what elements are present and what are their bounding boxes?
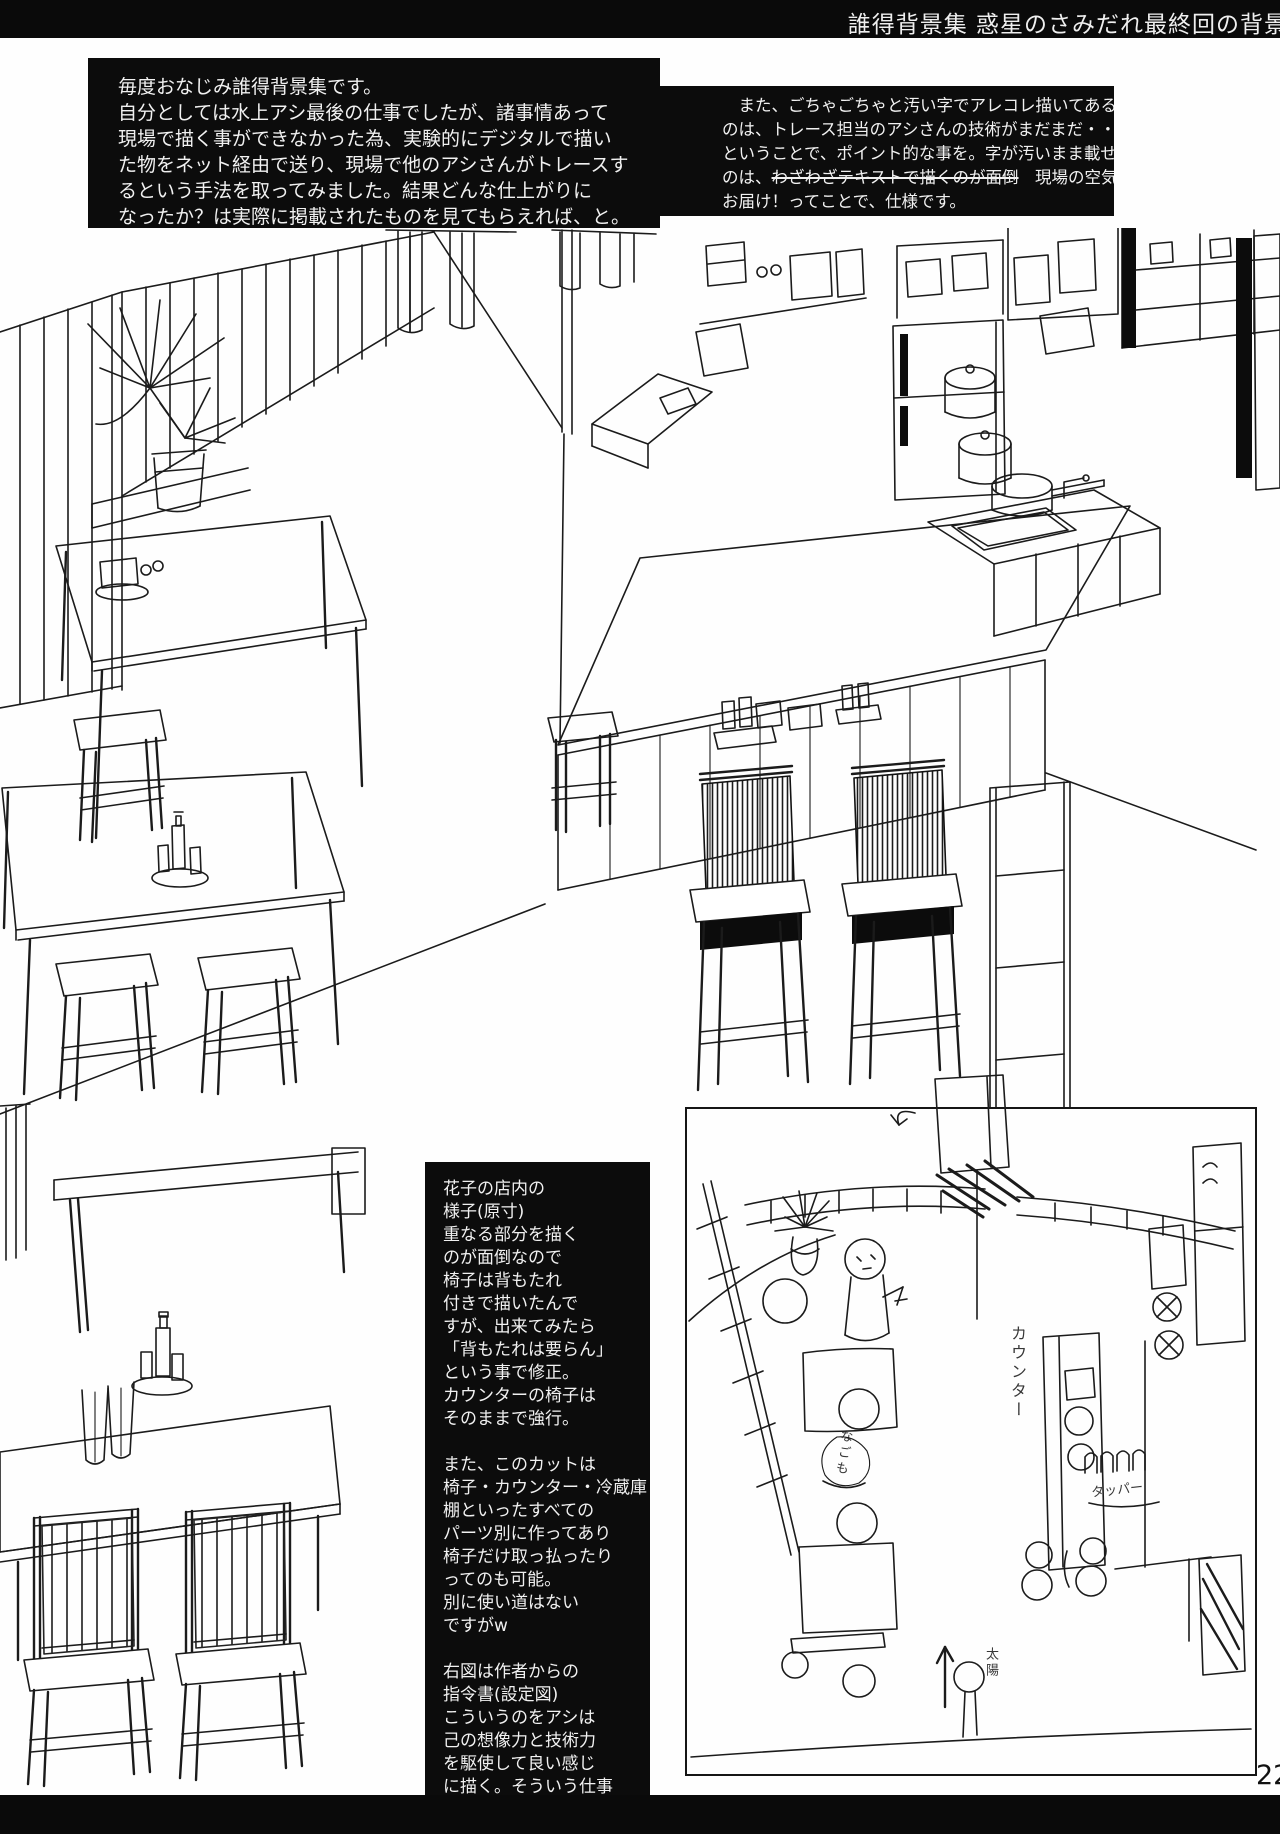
lower-illustration-tables-chairs xyxy=(0,1100,370,1795)
potted-plant xyxy=(88,300,235,512)
kitchen-area xyxy=(893,228,1280,636)
note-line: 椅子は背もたれ xyxy=(443,1270,650,1293)
page-title: 誰得背景集 惑星のさみだれ最終回の背景 xyxy=(848,5,1280,39)
stool xyxy=(74,710,166,842)
intro-right-line: また、ごちゃごちゃと汚い字でアレコレ描いてある xyxy=(722,94,1114,118)
wall-frame xyxy=(332,1148,365,1214)
back-table xyxy=(54,1152,358,1332)
note-line: 「背もたれは要らん」 xyxy=(443,1339,650,1362)
note-line: すが、出来てみたら xyxy=(443,1316,650,1339)
note-line: 棚といったすべての xyxy=(443,1500,650,1523)
note-line: という事で修正。 xyxy=(443,1362,650,1385)
note-line: カウンターの椅子は xyxy=(443,1385,650,1408)
bottom-bar xyxy=(0,1795,1280,1834)
intro-text-right: また、ごちゃごちゃと汚い字でアレコレ描いてある のは、トレース担当のアシさんの技… xyxy=(660,86,1114,216)
intro-left-line: 自分としては水上アシ最後の仕事でしたが、諸事情あって xyxy=(118,100,660,126)
stool xyxy=(198,948,300,1094)
note-line: 椅子・カウンター・冷蔵庫 xyxy=(443,1477,650,1500)
note-line: 別に使い道はない xyxy=(443,1592,650,1615)
condiment-set xyxy=(132,1312,192,1395)
intro-left-line: るという手法を取ってみました。結果どんな仕上がりに xyxy=(118,178,660,204)
slat-back-chair xyxy=(24,1509,154,1786)
intro-text-left: 毎度おなじみ誰得背景集です。 自分としては水上アシ最後の仕事でしたが、諸事情あっ… xyxy=(88,58,660,228)
dining-table xyxy=(56,516,366,838)
bar-chair xyxy=(690,766,810,1090)
notes-text-column: 花子の店内の 様子(原寸) 重なる部分を描く のが面倒なので 椅子は背もたれ 付… xyxy=(425,1162,650,1834)
note-line: パーツ別に作ってあり xyxy=(443,1523,650,1546)
note-line: そのままで強行。 xyxy=(443,1408,650,1431)
note-line: ですがw xyxy=(443,1615,650,1638)
main-illustration-restaurant-interior xyxy=(0,228,1280,1163)
sketch-label-sun: 太陽 xyxy=(981,1647,1000,1679)
layout-sketch-drawing xyxy=(687,1059,1255,1774)
note-line-blank xyxy=(443,1431,650,1454)
intro-left-line: 現場で描く事ができなかった為、実験的にデジタルで描い xyxy=(118,126,660,152)
glasses xyxy=(82,1382,134,1464)
top-bar: 誰得背景集 惑星のさみだれ最終回の背景 xyxy=(0,0,1280,38)
stool xyxy=(56,954,158,1100)
note-line: こういうのをアシは xyxy=(443,1707,650,1730)
note-line: 椅子だけ取っ払ったり xyxy=(443,1546,650,1569)
intro-left-line: た物をネット経由で送り、現場で他のアシさんがトレースす xyxy=(118,152,660,178)
intro-right-line: ということで、ポイント的な事を。字が汚いまま載せる xyxy=(722,142,1114,166)
intro-left-line: なったか？は実際に掲載されたものを見てもらえれば、と。 xyxy=(118,204,660,228)
intro-left-line: 毎度おなじみ誰得背景集です。 xyxy=(118,74,660,100)
note-line: 様子(原寸) xyxy=(443,1201,650,1224)
note-line: 己の想像力と技術力 xyxy=(443,1730,650,1753)
bar-counter xyxy=(558,374,1130,890)
sketch-strokes xyxy=(689,1075,1251,1757)
struck-text: わざわざテキストで描くのが面倒 xyxy=(772,168,1019,187)
slat-back-chair xyxy=(176,1503,306,1780)
note-line: 花子の店内の xyxy=(443,1178,650,1201)
note-line-blank xyxy=(443,1638,650,1661)
intro-right-line: のは、わざわざテキストで描くのが面倒 現場の空気を xyxy=(722,166,1114,190)
note-line: 付きで描いたんで xyxy=(443,1293,650,1316)
wall-shelf-items xyxy=(696,242,866,376)
note-line: のが面倒なので xyxy=(443,1247,650,1270)
note-line: を駆使して良い感じ xyxy=(443,1753,650,1776)
note-line: 右図は作者からの xyxy=(443,1661,650,1684)
note-line: また、このカットは xyxy=(443,1454,650,1477)
page-number: 22 xyxy=(1256,1760,1280,1791)
wall-paneling xyxy=(0,230,572,743)
bar-chair xyxy=(842,760,962,1084)
scanned-artbook-page: 誰得背景集 惑星のさみだれ最終回の背景 毎度おなじみ誰得背景集です。 自分として… xyxy=(0,0,1280,1834)
note-line: 重なる部分を描く xyxy=(443,1224,650,1247)
note-line: 指令書(設定図) xyxy=(443,1684,650,1707)
intro-right-line: お届け！ってことで、仕様です。 xyxy=(722,190,1114,214)
noren-curtains xyxy=(386,230,656,333)
note-line: ってのも可能。 xyxy=(443,1569,650,1592)
intro-right-line: のは、トレース担当のアシさんの技術がまだまだ・・・ xyxy=(722,118,1114,142)
sketch-label-counter: カウンター xyxy=(1005,1325,1029,1420)
wall-lines xyxy=(0,1104,30,1260)
layout-sketch-box: カウンター タッパー 太陽 なごも xyxy=(685,1107,1257,1776)
